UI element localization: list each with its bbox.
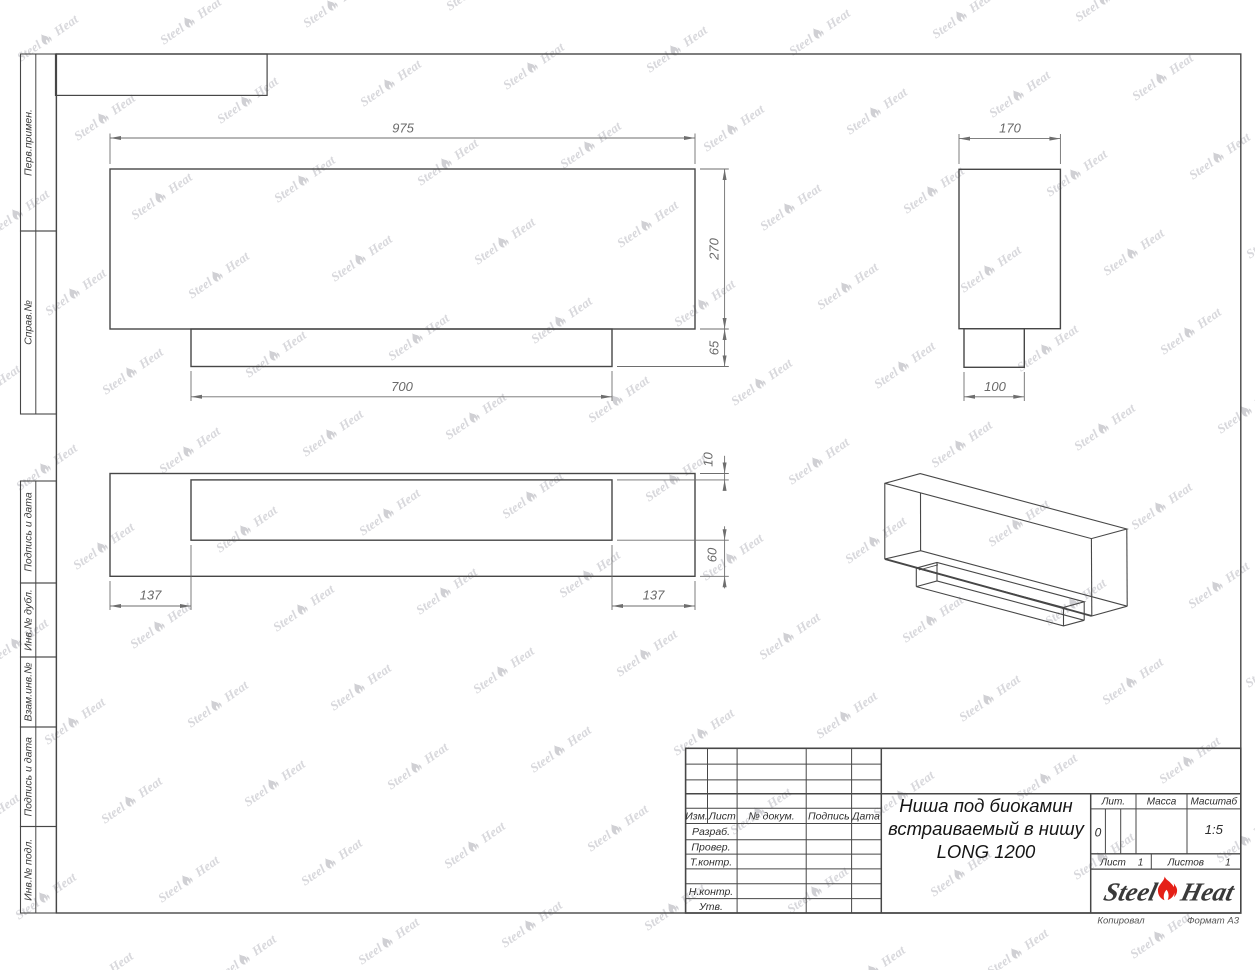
svg-text:1: 1 — [1138, 858, 1144, 869]
svg-text:1:5: 1:5 — [1205, 822, 1224, 837]
svg-text:Масштаб: Масштаб — [1190, 796, 1237, 808]
svg-text:Steel: Steel — [1101, 877, 1161, 907]
svg-text:Ниша под биокамин: Ниша под биокамин — [899, 795, 1072, 816]
svg-text:1: 1 — [1225, 858, 1231, 869]
svg-text:Подпись: Подпись — [808, 811, 850, 823]
svg-text:Перв.примен.: Перв.примен. — [23, 109, 35, 176]
svg-text:975: 975 — [392, 121, 414, 136]
svg-text:Heat: Heat — [1177, 877, 1238, 907]
svg-text:Масса: Масса — [1147, 797, 1177, 808]
svg-text:Подпись и дата: Подпись и дата — [23, 492, 35, 572]
svg-text:Т.контр.: Т.контр. — [690, 857, 732, 869]
svg-text:Лист: Лист — [708, 811, 736, 823]
svg-text:700: 700 — [391, 379, 413, 394]
svg-text:137: 137 — [140, 588, 162, 603]
svg-text:Инв.№ подл.: Инв.№ подл. — [23, 839, 35, 901]
svg-text:10: 10 — [701, 452, 716, 467]
svg-text:Формат A3: Формат A3 — [1187, 916, 1240, 927]
svg-text:137: 137 — [643, 588, 665, 603]
svg-text:Разраб.: Разраб. — [692, 826, 730, 838]
svg-text:Лит.: Лит. — [1101, 797, 1125, 808]
svg-text:Дата: Дата — [851, 811, 880, 823]
svg-text:Лист: Лист — [1099, 858, 1126, 869]
svg-text:100: 100 — [984, 379, 1006, 394]
svg-text:Инв.№ дубл.: Инв.№ дубл. — [23, 589, 35, 651]
svg-text:Н.контр.: Н.контр. — [689, 886, 733, 898]
svg-text:170: 170 — [999, 121, 1021, 136]
svg-text:Справ.№: Справ.№ — [23, 300, 35, 345]
svg-text:Копировал: Копировал — [1097, 916, 1145, 927]
svg-text:0: 0 — [1095, 826, 1102, 840]
svg-text:65: 65 — [707, 340, 722, 355]
svg-text:Подпись и дата: Подпись и дата — [23, 737, 35, 817]
svg-text:встраиваемый в нишу: встраиваемый в нишу — [888, 818, 1086, 839]
svg-text:LONG 1200: LONG 1200 — [937, 841, 1036, 862]
svg-text:270: 270 — [707, 237, 722, 260]
svg-text:Взам.инв.№: Взам.инв.№ — [23, 662, 35, 721]
svg-text:Изм.: Изм. — [685, 811, 707, 823]
svg-text:Утв.: Утв. — [698, 901, 723, 913]
svg-text:№ докум.: № докум. — [748, 811, 794, 823]
svg-text:60: 60 — [705, 547, 720, 562]
svg-text:Провер.: Провер. — [691, 842, 730, 854]
svg-text:Листов: Листов — [1167, 858, 1204, 869]
